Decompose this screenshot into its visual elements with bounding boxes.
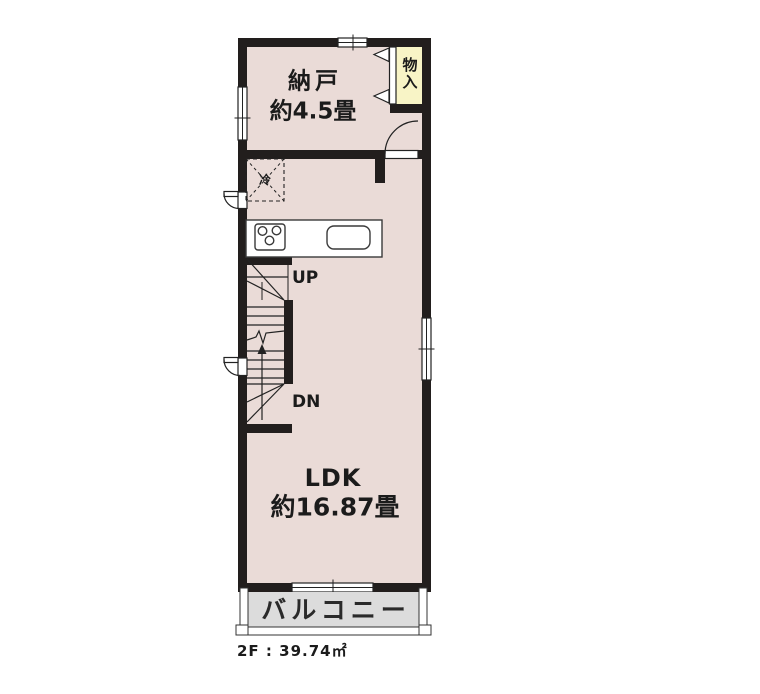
kitchen-counter — [246, 220, 382, 257]
storage-room-name: 納戸 — [288, 71, 342, 94]
storage-room-size: 約4.5畳 — [270, 101, 357, 124]
balcony-label: バルコニー — [261, 598, 411, 623]
floor-plan-drawing — [0, 0, 760, 694]
floor-area-text: 2F : 39.74㎡ — [237, 644, 348, 659]
floor-plan: 納戸 約4.5畳 物入 冷 UP DN LDK 約16.87畳 バルコニー 2F… — [0, 0, 760, 694]
ldk-size: 約16.87畳 — [270, 495, 399, 520]
refrigerator-label: 冷 — [259, 174, 271, 186]
stove-icon — [255, 224, 285, 250]
closet-label: 物入 — [402, 57, 417, 91]
casement-window-upper — [224, 192, 247, 209]
stairs-up-label: UP — [292, 270, 318, 287]
stairs-down-label: DN — [292, 394, 320, 411]
ldk-name: LDK — [305, 466, 362, 490]
casement-window-lower — [224, 358, 247, 376]
sink-icon — [327, 226, 370, 249]
